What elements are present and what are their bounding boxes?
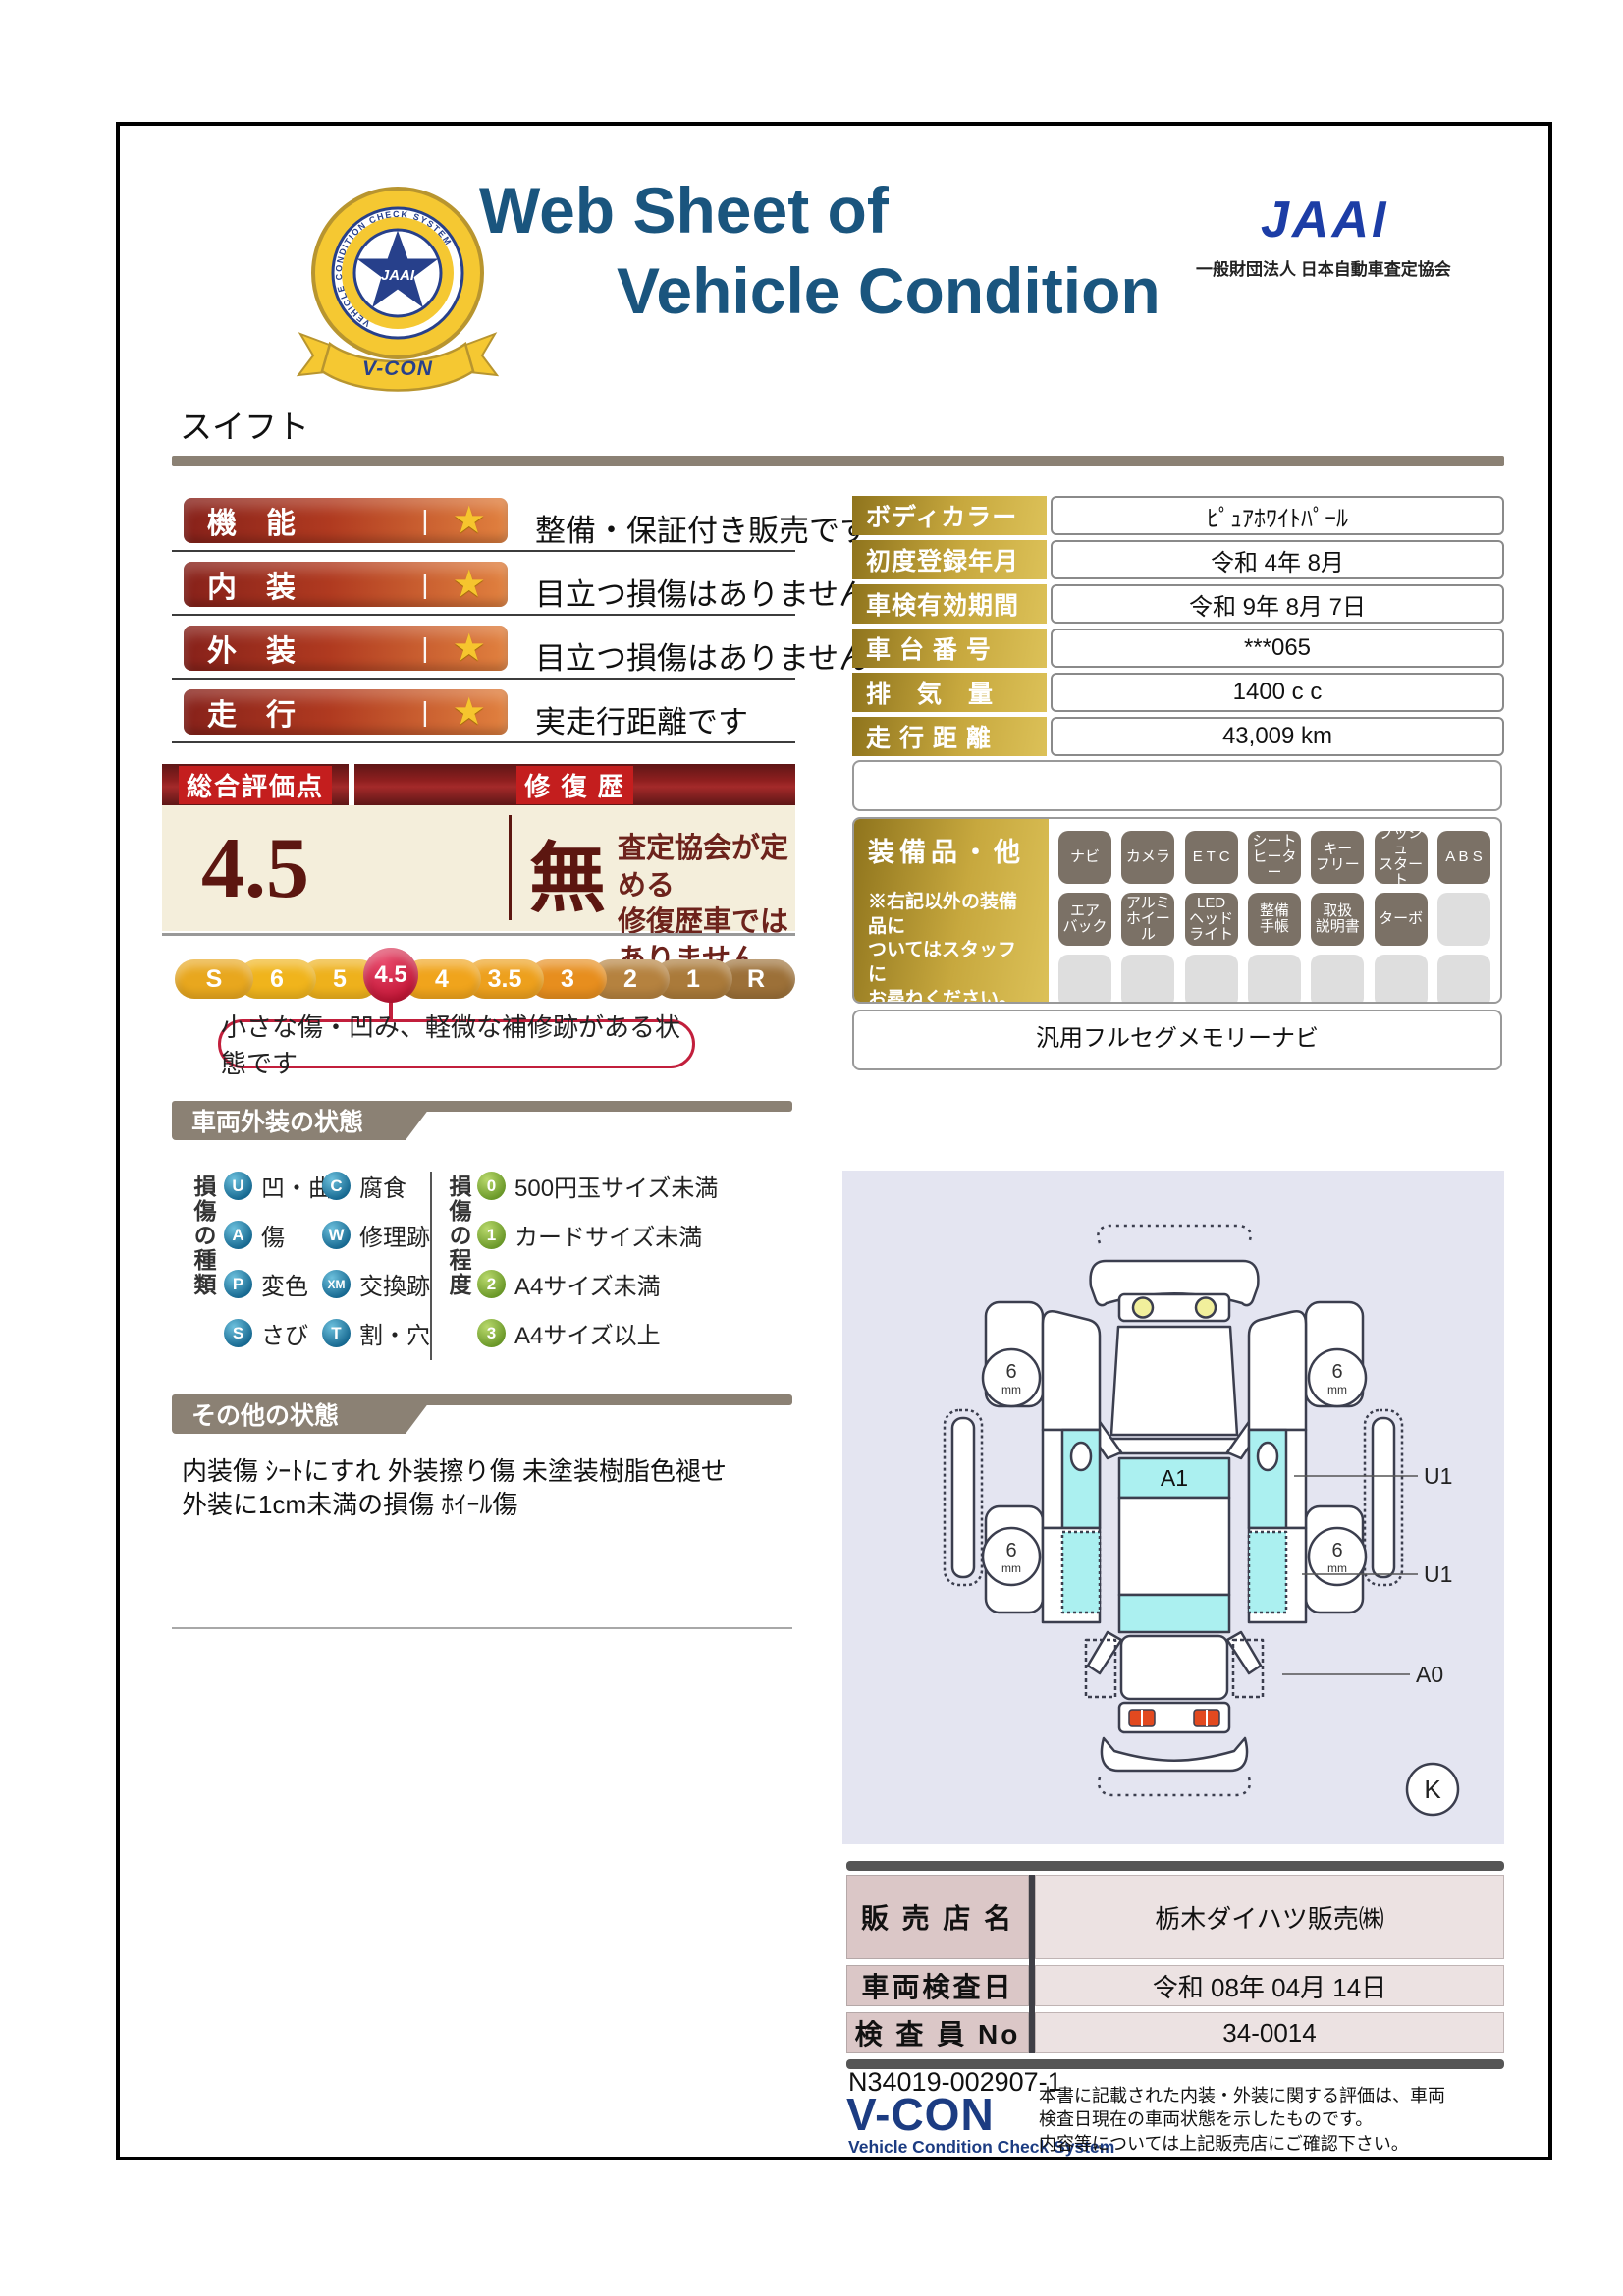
legend-item: T 割・穴	[322, 1319, 430, 1347]
damage-label: 割・穴	[359, 1316, 430, 1350]
section-title: 車両外装の状態	[191, 1103, 363, 1138]
spec-value-body-color: ﾋﾟｭｱﾎﾜｲﾄﾊﾟｰﾙ	[1051, 496, 1504, 535]
damage-code-icon: S	[224, 1319, 252, 1347]
svg-text:mm: mm	[1327, 1383, 1347, 1396]
inspector-no-value: 34-0014	[1035, 2012, 1504, 2053]
rating-bar-mileage: 走 行 | ★	[184, 689, 508, 735]
badge-row	[1058, 955, 1490, 1004]
inspector-no-label: 検 査 員 No	[846, 2012, 1029, 2053]
equipment-badge-empty	[1375, 955, 1428, 1004]
other-section-bar: その他の状態	[172, 1394, 792, 1405]
rating-scale: S 6 5 4.5 4 3.5 3 2 1 R	[175, 956, 795, 1003]
equipment-badge-seat-heater: シート ヒーター	[1248, 831, 1301, 884]
legend-item: W 修理跡	[322, 1221, 430, 1249]
equipment-badge-turbo: ターボ	[1375, 893, 1428, 946]
damage-label: 傷	[261, 1218, 285, 1252]
rating-label: 外 装	[207, 627, 296, 670]
damage-mark-u1-top: U1	[1424, 1463, 1452, 1489]
equipment-badge-empty	[1185, 955, 1238, 1004]
damage-code-icon: A	[224, 1221, 252, 1249]
jaai-logo: JAAI	[1261, 191, 1388, 249]
degree-code-icon: 1	[477, 1221, 506, 1249]
section-title-block: 車両外装の状態	[172, 1101, 406, 1140]
section-title: その他の状態	[191, 1396, 339, 1432]
equipment-badge-empty	[1058, 955, 1111, 1004]
inspection-date-label: 車両検査日	[846, 1965, 1029, 2006]
rating-bar-interior: 内 装 | ★	[184, 562, 508, 607]
rating-bar-function: 機 能 | ★	[184, 498, 508, 543]
spec-value-chassis-number: ***065	[1051, 629, 1504, 668]
navigation-note-box: 汎用フルセグメモリーナビ	[852, 1010, 1502, 1070]
star-icon: ★	[455, 565, 484, 604]
scale-pill-s: S	[175, 959, 253, 999]
legend-item: 1 カードサイズ未満	[477, 1221, 718, 1249]
svg-text:mm: mm	[1327, 1561, 1347, 1575]
wheel-rear-right: 6 mm	[1309, 1528, 1366, 1585]
wheel-front-left: 6 mm	[983, 1349, 1040, 1406]
spec-value-first-registration: 令和 4年 8月	[1051, 540, 1504, 579]
svg-text:6: 6	[1331, 1361, 1342, 1383]
damage-type-col2: C 腐食 W 修理跡 XM 交換跡 T 割・穴	[322, 1172, 430, 1347]
row-divider	[172, 741, 795, 743]
equipment-badge-empty	[1311, 955, 1364, 1004]
overall-score-header: 総合評価点 修 復 歴	[162, 764, 795, 805]
legend-item: A 傷	[224, 1221, 332, 1249]
repair-history-header: 修 復 歴	[354, 764, 795, 805]
footer-disclaimer: 本書に記載された内装・外装に関する評価は、車両 検査日現在の車両状態を示したもの…	[1039, 2084, 1540, 2156]
sheet-title-line1: Web Sheet of	[479, 173, 889, 247]
legend-item: C 腐食	[322, 1172, 430, 1200]
spec-value-displacement: 1400 c c	[1051, 673, 1504, 712]
equipment-badge-empty	[1437, 893, 1490, 946]
overall-score-title: 総合評価点	[179, 766, 332, 804]
damage-code-icon: P	[224, 1270, 252, 1298]
repair-history-value: 無	[529, 817, 606, 927]
inspection-date-value: 令和 08年 04月 14日	[1035, 1965, 1504, 2006]
damage-code-icon: U	[224, 1172, 252, 1200]
page-border	[116, 122, 1552, 2160]
left-bottom-line	[172, 1627, 792, 1629]
equipment-badge-led-headlight: LED ヘッド ライト	[1185, 893, 1238, 946]
diagram-k-mark: K	[1424, 1775, 1441, 1804]
repair-history-title: 修 復 歴	[516, 766, 632, 804]
spec-label-chassis-number: 車 台 番 号	[852, 629, 1047, 668]
equipment-badge-empty	[1437, 955, 1490, 1004]
row-divider	[172, 678, 795, 680]
vcon-emblem-icon: VEHICLE CONDITION CHECK SYSTEM JAAI V-CO…	[291, 183, 505, 410]
car-diagram-svg: 6 mm 6 mm 6 mm 6 mm	[842, 1171, 1504, 1844]
equipment-note: ※右記以外の装備品に ついてはスタッフに お尋ねください。	[868, 891, 1035, 1004]
score-underline	[162, 933, 795, 936]
equipment-badge-navi: ナビ	[1058, 831, 1111, 884]
legend-item: 3 A4サイズ以上	[477, 1319, 718, 1347]
rating-label: 走 行	[207, 690, 296, 734]
row-divider	[172, 550, 795, 552]
rating-desc: 目立つ損傷はありません	[535, 570, 869, 614]
overall-score-body: 4.5 無 査定協会が定める 修復歴車ではありません	[162, 805, 795, 931]
spec-value-inspection-valid: 令和 9年 8月 7日	[1051, 584, 1504, 624]
equipment-badges: ナビ カメラ E T C シート ヒーター キー フリー プッシュ スタート A…	[1049, 819, 1500, 1002]
equipment-badge-push-start: プッシュ スタート	[1375, 831, 1428, 884]
divider-bar-top	[172, 456, 1504, 466]
legend-item: 0 500円玉サイズ未満	[477, 1172, 718, 1200]
equipment-badge-maintenance-book: 整備 手帳	[1248, 893, 1301, 946]
score-callout: 小さな傷・凹み、軽微な補修跡がある状態です	[218, 1019, 695, 1068]
vehicle-name: スイフト	[180, 401, 309, 448]
damage-mark-u1-mid: U1	[1424, 1561, 1452, 1587]
rating-desc: 目立つ損傷はありません	[535, 633, 869, 678]
rating-separator: |	[421, 696, 428, 728]
spec-label-displacement: 排 気 量	[852, 673, 1047, 712]
section-title-block: その他の状態	[172, 1394, 406, 1434]
dealer-table-top-bar	[846, 1861, 1504, 1871]
damage-degree-label: 損傷の程度	[442, 1175, 475, 1351]
damage-type-label: 損傷の種類	[187, 1175, 220, 1351]
exterior-section-bar: 車両外装の状態	[172, 1101, 792, 1112]
jaai-org-name: 一般財団法人 日本自動車査定協会	[1196, 255, 1451, 280]
svg-text:mm: mm	[1001, 1383, 1021, 1396]
equipment-title: 装備品・他	[868, 831, 1035, 869]
emblem-vcon-text: V-CON	[362, 357, 433, 380]
equipment-title-cell: 装備品・他 ※右記以外の装備品に ついてはスタッフに お尋ねください。	[854, 819, 1049, 1002]
wheel-front-right: 6 mm	[1309, 1349, 1366, 1406]
damage-mark-a1: A1	[1161, 1465, 1188, 1491]
wheel-rear-left: 6 mm	[983, 1528, 1040, 1585]
equipment-badge-camera: カメラ	[1121, 831, 1174, 884]
equipment-badge-etc: E T C	[1185, 831, 1238, 884]
car-damage-diagram: 6 mm 6 mm 6 mm 6 mm	[842, 1171, 1504, 1844]
badge-row: エア バック アルミ ホイール LED ヘッド ライト 整備 手帳 取扱 説明書…	[1058, 893, 1490, 946]
degree-code-icon: 3	[477, 1319, 506, 1347]
spec-label-inspection-valid: 車検有効期間	[852, 584, 1047, 624]
equipment-box: 装備品・他 ※右記以外の装備品に ついてはスタッフに お尋ねください。 ナビ カ…	[852, 817, 1502, 1004]
vcon-footer-logo: V-CON	[846, 2088, 995, 2141]
equipment-badge-abs: A B S	[1437, 831, 1490, 884]
scale-pill-4-5-selected: 4.5	[363, 948, 418, 1003]
legend-item: U 凹・曲	[224, 1172, 332, 1200]
rating-label: 内 装	[207, 563, 296, 606]
svg-text:6: 6	[1005, 1540, 1016, 1561]
spec-empty-box	[852, 760, 1502, 811]
damage-type-col1: U 凹・曲 A 傷 P 変色 S さび	[224, 1172, 332, 1347]
equipment-badge-alloy-wheel: アルミ ホイール	[1121, 893, 1174, 946]
damage-code-icon: C	[322, 1172, 351, 1200]
svg-text:6: 6	[1331, 1540, 1342, 1561]
degree-label: カードサイズ未満	[514, 1218, 702, 1252]
legend-item: 2 A4サイズ未満	[477, 1270, 718, 1298]
badge-row: ナビ カメラ E T C シート ヒーター キー フリー プッシュ スタート A…	[1058, 831, 1490, 884]
rating-separator: |	[421, 505, 428, 536]
rating-label: 機 能	[207, 499, 296, 542]
star-icon: ★	[455, 501, 484, 540]
equipment-badge-manual: 取扱 説明書	[1311, 893, 1364, 946]
dealer-table-divider	[1029, 1875, 1035, 2053]
damage-label: 変色	[261, 1267, 308, 1301]
dealer-name-value: 栃木ダイハツ販売㈱	[1035, 1875, 1504, 1959]
damage-mark-a0: A0	[1416, 1662, 1443, 1687]
damage-label: さび	[261, 1316, 308, 1350]
spec-label-first-registration: 初度登録年月	[852, 540, 1047, 579]
body-separator	[509, 815, 512, 920]
rating-separator: |	[421, 569, 428, 600]
damage-code-icon: W	[322, 1221, 351, 1249]
rating-bar-exterior: 外 装 | ★	[184, 626, 508, 671]
equipment-badge-empty	[1121, 955, 1174, 1004]
equipment-badge-key-free: キー フリー	[1311, 831, 1364, 884]
star-icon: ★	[455, 629, 484, 668]
other-condition-text: 内装傷 ｼｰﾄにすれ 外装擦り傷 未塗装樹脂色褪せ 外装に1cm未満の損傷 ﾎｲ…	[182, 1455, 810, 1522]
legend-item: S さび	[224, 1319, 332, 1347]
legend-divider	[430, 1172, 432, 1360]
legend-item: XM 交換跡	[322, 1270, 430, 1298]
rating-separator: |	[421, 632, 428, 664]
equipment-badge-empty	[1248, 955, 1301, 1004]
spec-value-mileage: 43,009 km	[1051, 717, 1504, 756]
degree-label: 500円玉サイズ未満	[514, 1169, 718, 1203]
spec-label-body-color: ボディカラー	[852, 496, 1047, 535]
damage-code-icon: T	[322, 1319, 351, 1347]
damage-code-icon: XM	[322, 1270, 351, 1298]
damage-label: 腐食	[359, 1169, 406, 1203]
star-icon: ★	[455, 692, 484, 732]
overall-score-value: 4.5	[162, 805, 349, 931]
degree-label: A4サイズ未満	[514, 1267, 661, 1301]
svg-text:6: 6	[1005, 1361, 1016, 1383]
spec-label-mileage: 走 行 距 離	[852, 717, 1047, 756]
row-divider	[172, 614, 795, 616]
rating-desc: 実走行距離です	[535, 697, 748, 741]
degree-code-icon: 2	[477, 1270, 506, 1298]
svg-text:mm: mm	[1001, 1561, 1021, 1575]
dealer-name-label: 販 売 店 名	[846, 1875, 1029, 1959]
damage-label: 交換跡	[359, 1267, 430, 1301]
emblem-jaai-text: JAAI	[381, 267, 415, 284]
damage-degree-col: 0 500円玉サイズ未満 1 カードサイズ未満 2 A4サイズ未満 3 A4サイ…	[477, 1172, 718, 1347]
rating-desc: 整備・保証付き販売です	[535, 506, 870, 550]
damage-label: 修理跡	[359, 1218, 430, 1252]
sheet-title-line2: Vehicle Condition	[617, 253, 1161, 328]
degree-code-icon: 0	[477, 1172, 506, 1200]
overall-score-header-left: 総合評価点	[162, 764, 349, 805]
legend-item: P 変色	[224, 1270, 332, 1298]
vehicle-condition-sheet: VEHICLE CONDITION CHECK SYSTEM JAAI V-CO…	[0, 0, 1623, 2296]
degree-label: A4サイズ以上	[514, 1316, 661, 1350]
equipment-badge-airbag: エア バック	[1058, 893, 1111, 946]
